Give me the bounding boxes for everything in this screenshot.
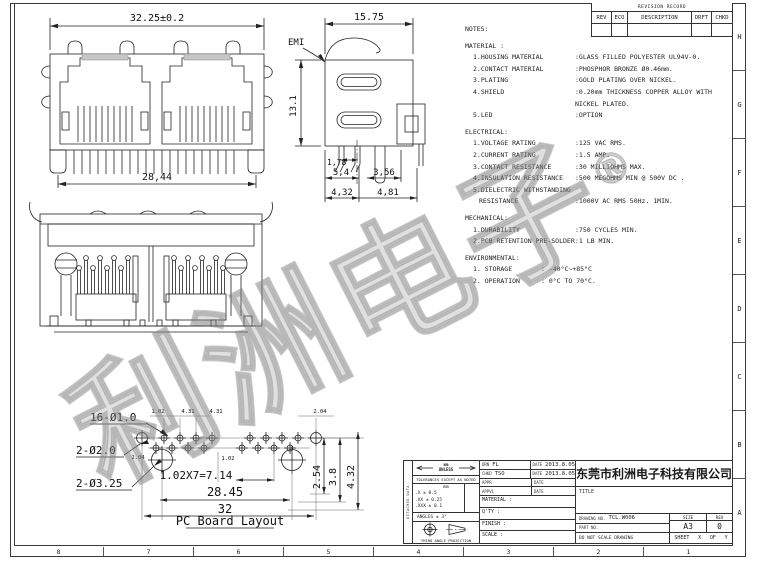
finish-field: FINISH : xyxy=(480,520,575,532)
zone-letter: A xyxy=(733,478,746,546)
dim-label: 1,78 xyxy=(327,158,346,167)
engineering-drawing-page: { "border": { "right_letters": ["H","G",… xyxy=(0,0,758,570)
title-block: DETACHED DATA mmUNLESS TOLERANCES EXCEPT… xyxy=(403,460,733,544)
zone-numbers: 8 7 6 5 4 3 2 1 xyxy=(14,547,733,556)
dim-label: 1.02 xyxy=(221,456,234,462)
drawing-number-block: DRAWING NO.TCL.W006 PART NO. xyxy=(576,514,670,532)
signoff-row: CHKDTSO DATE2013.8.05 xyxy=(480,470,575,479)
note-item: 3.CONTACT RESISTANCE:30 MILLIOHMS MAX. xyxy=(473,162,733,174)
col-eco: ECO xyxy=(612,12,628,23)
pcb-layout-title: PC Board Layout xyxy=(176,514,284,528)
signoff-row: APPR DATE xyxy=(480,479,575,488)
zone-number: 5 xyxy=(283,547,373,556)
tolerance-table: mm .X ± 0.5 .XX ± 0.25 .XXX ± 0.1 xyxy=(413,484,479,514)
front-view-lines xyxy=(42,18,273,188)
zone-letter: C xyxy=(733,342,746,410)
note-item: 1.VOLTAGE RATING:125 VAC RMS. xyxy=(473,138,733,150)
dim-label: 1.02X7=7.14 xyxy=(160,469,233,482)
note-item: 1.HOUSING MATERIAL:GLASS FILLED POLYESTE… xyxy=(473,52,733,64)
projection-cell: THIRD ANGLE PROJECTION xyxy=(413,522,479,543)
signoff-row: APPVL DATE xyxy=(480,487,575,496)
zone-number: 6 xyxy=(193,547,283,556)
side-view-lines xyxy=(295,18,425,202)
units-row: mmUNLESS xyxy=(413,461,479,476)
dim-label: 3.8 xyxy=(328,468,339,486)
dim-label: 5,4 xyxy=(333,168,349,178)
note-item: 2.CURRENT RATING:1.5 AMP. xyxy=(473,150,733,162)
note-item: 1. STORAGE: -40°C~+85°C xyxy=(473,264,733,276)
signoff-row: DRNFL DATE2013.8.05 xyxy=(480,461,575,470)
drawing-number: TCL.W006 xyxy=(608,515,635,521)
dim-label: 28,44 xyxy=(142,172,172,183)
notes-electrical-title: ELECTRICAL: xyxy=(465,127,733,139)
rear-view-lines xyxy=(30,202,273,332)
zone-number: 3 xyxy=(463,547,553,556)
dim-label: 3,56 xyxy=(373,168,395,178)
zone-number: 4 xyxy=(373,547,463,556)
dim-label: 4.31 xyxy=(209,409,222,415)
dim-label: 2.54 xyxy=(312,465,323,489)
title-block-right: 东莞市利洲电子科技有限公司 TITLE DRAWING NO.TCL.W006 … xyxy=(576,461,732,543)
dim-arrow-icon xyxy=(416,465,434,471)
note-item: 2.PCB RETENTION PRE-SOLDER:1 LB MIN. xyxy=(473,236,733,248)
dim-label: 28.45 xyxy=(207,485,243,499)
zone-number: 2 xyxy=(553,547,643,556)
company-name: 东莞市利洲电子科技有限公司 xyxy=(576,461,732,487)
note-item: 4.SHIELD:0.20mm THICKNESS COPPER ALLOY W… xyxy=(473,87,733,110)
note-item: 2.CONTACT MATERIAL:PHOSPHOR BRONZE Ø0.46… xyxy=(473,64,733,76)
tolerance-side-strip: DETACHED DATA xyxy=(404,461,413,543)
front-view-drawing: 32.25±0.2 28,44 xyxy=(24,10,276,200)
dim-label: 15.75 xyxy=(354,12,384,23)
tolerance-block: DETACHED DATA mmUNLESS TOLERANCES EXCEPT… xyxy=(404,461,480,543)
hole-callout: 2-Ø2.0 xyxy=(76,444,116,457)
hole-callout: 16-Ø1.0 xyxy=(90,411,136,424)
front-latch-tab xyxy=(184,54,230,60)
front-latch-tab xyxy=(82,54,128,60)
dim-label: 4,81 xyxy=(377,188,399,198)
note-item: RESISTANCE:1000V AC RMS 50Hz. 1MIN. xyxy=(473,196,733,208)
dim-label: 32.25±0.2 xyxy=(130,13,184,24)
zone-number: 8 xyxy=(14,547,103,556)
signoff-block: DRNFL DATE2013.8.05 CHKDTSO DATE2013.8.0… xyxy=(480,461,576,543)
side-view-drawing: 15.75 EMI 13.1 1,78 5,4 3,56 4,32 4,81 xyxy=(283,10,435,220)
dim-label: 1.02 xyxy=(151,409,164,415)
scale-field: SCALE : xyxy=(480,531,575,543)
notes-heading: NOTES: xyxy=(465,24,733,36)
zone-number: 1 xyxy=(643,547,733,556)
angles-tolerance: ANGLES ± 3° xyxy=(413,513,479,522)
qty-field: Q'TY : xyxy=(480,508,575,520)
note-item: 1.DURABILITY:750 CYCLES MIN. xyxy=(473,225,733,237)
sheet-field: SHEET X OF Y xyxy=(670,533,732,543)
note-item: 2. OPERATION: 0°C TO 70°C. xyxy=(473,276,733,288)
note-item: 4.INSULATION RESISTANCE:500 MEGOHMS MIN … xyxy=(473,173,733,185)
notes-environmental-title: ENVIRONMENTAL: xyxy=(465,253,733,265)
revision-table-header: REV ECO DESCRIPTION DRFT CHKD xyxy=(592,12,732,24)
revision-table-title: REVISION RECORD xyxy=(592,3,732,12)
col-chkd: CHKD xyxy=(712,12,732,23)
col-rev: REV xyxy=(592,12,612,23)
notes-material-title: MATERIAL : xyxy=(465,41,733,53)
col-description: DESCRIPTION xyxy=(628,12,692,23)
tolerance-note: TOLERANCES EXCEPT AS NOTED xyxy=(413,476,479,484)
zone-letter: B xyxy=(733,410,746,478)
sheet-total: Y xyxy=(725,535,728,541)
size-rev-block: SIZEREV A30 xyxy=(670,514,732,532)
sheet-number: X xyxy=(698,535,701,541)
dim-arrow-icon xyxy=(458,465,476,471)
projection-caption: THIRD ANGLE PROJECTION xyxy=(421,538,471,543)
pcb-layout-drawing: 16-Ø1.0 2-Ø2.0 2-Ø3.25 1.02 4.31 4.31 2.… xyxy=(58,402,392,542)
dim-label: 4,32 xyxy=(331,188,353,198)
zone-number: 7 xyxy=(103,547,193,556)
dim-label: 13.1 xyxy=(289,95,299,117)
zone-letter: G xyxy=(733,70,746,138)
zone-letter: E xyxy=(733,206,746,274)
material-field: MATERIAL : xyxy=(480,496,575,508)
revision-number: 0 xyxy=(707,521,732,532)
dim-label: 4.32 xyxy=(346,465,357,489)
title-field: TITLE xyxy=(576,487,732,514)
third-angle-projection-icon xyxy=(422,522,470,537)
zone-letter: H xyxy=(733,3,746,70)
sheet-size: A3 xyxy=(670,521,707,532)
dim-label: 2.04 xyxy=(313,409,327,415)
hole-callout: 2-Ø3.25 xyxy=(76,477,122,490)
rear-view-drawing xyxy=(26,198,276,346)
dim-label: 2.04 xyxy=(131,455,145,461)
notes-block: NOTES: MATERIAL : 1.HOUSING MATERIAL:GLA… xyxy=(465,24,733,287)
emi-label: EMI xyxy=(288,38,304,48)
zone-letters: H G F E D C B A xyxy=(733,3,746,546)
note-item: 3.PLATING:GOLD PLATING OVER NICKEL. xyxy=(473,75,733,87)
dim-label: 4.31 xyxy=(181,409,194,415)
col-drft: DRFT xyxy=(692,12,712,23)
zone-letter: F xyxy=(733,138,746,206)
note-item: 5.LED:OPTION xyxy=(473,110,733,122)
notes-mechanical-title: MECHANICAL: xyxy=(465,213,733,225)
zone-letter: D xyxy=(733,274,746,342)
no-scale-note: DO NOT SCALE DRAWING xyxy=(576,533,670,543)
note-item: 5.DIELECTRIC WITHSTANDING xyxy=(473,185,733,197)
